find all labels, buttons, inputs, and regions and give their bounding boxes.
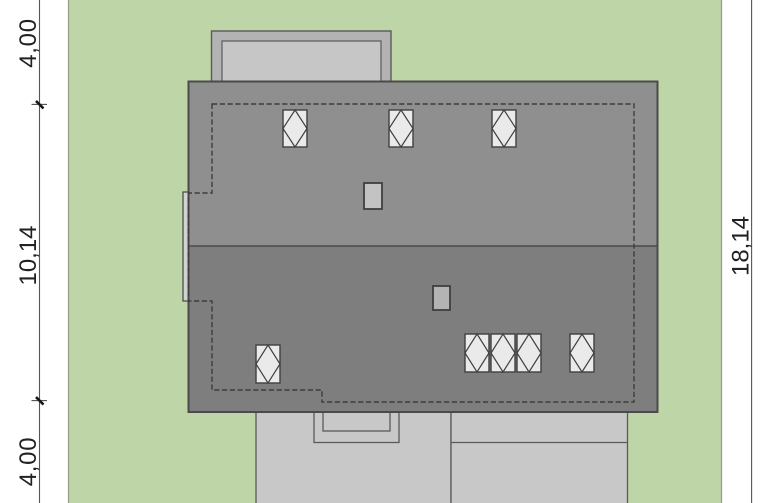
svg-text:4,00: 4,00 (15, 437, 42, 487)
svg-text:4,00: 4,00 (15, 18, 42, 68)
svg-text:10,14: 10,14 (15, 225, 42, 285)
svg-text:18,14: 18,14 (727, 216, 754, 276)
